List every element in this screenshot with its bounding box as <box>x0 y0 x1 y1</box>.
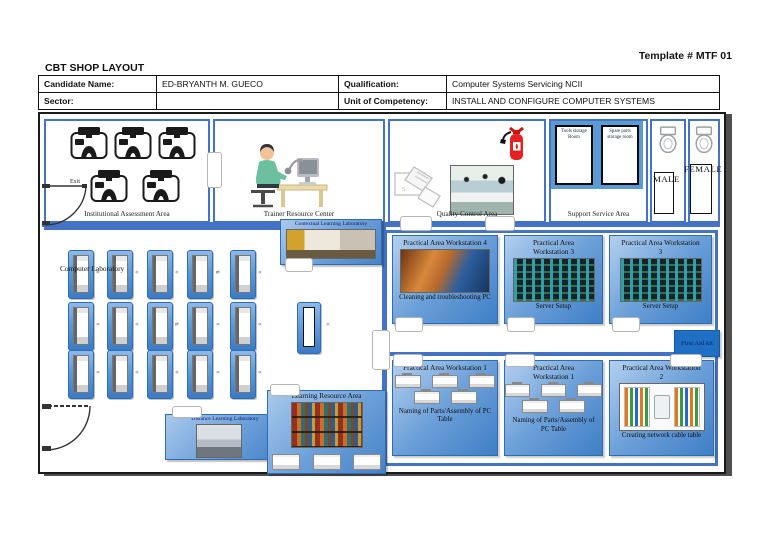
area-label: Support Service Area <box>551 210 646 218</box>
outlet-icon: « <box>258 368 262 376</box>
pc-part-icon <box>451 391 477 404</box>
door-opening <box>507 317 535 332</box>
cable-bundle <box>674 387 700 427</box>
workstation-caption: Naming of Parts/Assembly of PC Table <box>505 416 602 434</box>
pc-image <box>73 255 89 293</box>
trainer-at-computer-illustration <box>237 139 331 209</box>
pc-image <box>235 255 251 293</box>
workstation-title: Practical Area Workstation 4 <box>393 236 497 247</box>
workstation-caption: Creating network cable table <box>610 431 713 440</box>
learning-resource-area: Learning Resource Area <box>267 390 386 474</box>
pc-image <box>152 355 168 393</box>
workstation-desk-icon <box>114 126 152 160</box>
workstation-title: Practical Area Workstation 3 <box>505 236 602 256</box>
trainer-resource-center: Trainer Resource Center <box>213 119 385 223</box>
first-aid-kit: First Aid kit <box>674 330 720 357</box>
network-cable-photo <box>619 383 705 431</box>
outlet-icon: « <box>96 320 100 328</box>
male-label: MALE <box>653 174 680 184</box>
cabinet-door-tile <box>297 302 321 354</box>
female-label: FEMALE <box>684 164 722 174</box>
outlet-icon: « <box>175 368 179 376</box>
pc-image <box>73 307 89 345</box>
outlet-icon: « <box>96 368 100 376</box>
pc-part-icon <box>541 384 566 397</box>
workstation-caption: Server Setup <box>610 302 711 311</box>
computer-workstation-tile <box>107 350 133 399</box>
computer-workstation-tile <box>147 250 173 299</box>
toilet-icon <box>693 126 715 154</box>
outlet-icon: « <box>258 320 262 328</box>
table-row: Candidate Name: ED-BRYANTH M. GUECO Qual… <box>39 76 719 92</box>
pc-image <box>112 255 128 293</box>
pc-image <box>112 307 128 345</box>
sector-value <box>156 93 338 109</box>
pc-parts-row <box>505 400 602 413</box>
quality-control-photo <box>450 165 514 215</box>
pc-part-icon <box>577 384 602 397</box>
practical-area-workstation-3b: Practical Area Workstation 3 Server Setu… <box>609 235 712 324</box>
pc-part-icon <box>559 400 585 413</box>
practical-area-workstation-3: Practical Area Workstation 3 Server Setu… <box>504 235 603 324</box>
outlet-icon: « <box>216 368 220 376</box>
computer-workstation-tile <box>68 302 94 351</box>
computer-workstation-tile <box>147 350 173 399</box>
pc-parts-row <box>393 391 497 404</box>
outlet-icon: « <box>175 268 179 276</box>
pc-image <box>235 355 251 393</box>
candidate-info-table: Candidate Name: ED-BRYANTH M. GUECO Qual… <box>38 75 720 110</box>
entrance-door-icon <box>42 402 94 456</box>
door-opening <box>393 354 423 367</box>
reading-desk-icon <box>313 454 341 470</box>
qualification-value: Computer Systems Servicing NCII <box>446 76 719 92</box>
exit-label: Exit <box>70 179 80 185</box>
computer-workstation-tile <box>187 250 213 299</box>
door-opening <box>285 258 313 272</box>
computer-workstation-tile <box>68 250 94 299</box>
svg-text:5: 5 <box>402 187 405 193</box>
area-label: Trainer Resource Center <box>215 210 383 218</box>
workstation-desk-icon <box>90 169 128 203</box>
workstation-desk-icon <box>142 169 180 203</box>
equipment-sketch: 5 <box>394 165 450 211</box>
table-row: Sector: Unit of Competency: INSTALL AND … <box>39 92 719 109</box>
door-opening <box>400 216 432 231</box>
candidate-name-label: Candidate Name: <box>39 76 156 92</box>
toilet-icon <box>657 126 679 154</box>
spare-parts-storage: Spare parts storage room <box>601 125 639 185</box>
door-opening <box>485 216 515 231</box>
tools-storage-room: Tools storage Room <box>555 125 593 185</box>
bookshelf-photo <box>291 402 363 448</box>
workstation-title: Practical Area Workstation 3 <box>610 236 711 256</box>
pc-part-icon <box>505 384 530 397</box>
computer-workstation-tile <box>230 250 256 299</box>
workstation-desk-icon <box>70 126 108 160</box>
reading-desk-icon <box>353 454 381 470</box>
computer-workstation-tile <box>187 302 213 351</box>
computer-workstation-tile <box>107 250 133 299</box>
outlet-icon: « <box>326 320 330 328</box>
server-rack-photo <box>620 258 702 302</box>
door-opening <box>207 152 222 188</box>
workstation-caption: Cleaning and troubleshooting PC <box>393 293 497 302</box>
computer-laboratory-label: Computer Laboratory <box>60 264 124 273</box>
reading-desks <box>272 454 381 470</box>
practical-area-workstation-2: Practical Area Workstation 2 Creating ne… <box>609 360 714 456</box>
outlet-icon: ⇄ <box>216 268 220 276</box>
door-opening <box>270 384 300 396</box>
computer-workstation-tile <box>230 350 256 399</box>
server-rack-photo <box>513 258 595 302</box>
computer-workstation-tile <box>68 350 94 399</box>
unit-of-competency-value: INSTALL AND CONFIGURE COMPUTER SYSTEMS <box>446 93 719 109</box>
pc-part-icon <box>469 375 495 388</box>
unit-of-competency-label: Unit of Competency: <box>338 93 446 109</box>
wall-divider <box>386 352 716 356</box>
outlet-icon: « <box>135 368 139 376</box>
door-opening <box>395 317 423 332</box>
door-opening <box>372 330 390 370</box>
sector-label: Sector: <box>39 93 156 109</box>
pc-image <box>192 307 208 345</box>
classroom-photo <box>196 424 242 458</box>
cable-bundle <box>624 387 650 427</box>
outlet-icon: « <box>135 268 139 276</box>
area-label: Contextual Learning Laboratory <box>281 220 381 227</box>
pc-parts-row <box>505 384 602 397</box>
classroom-photo <box>286 229 376 259</box>
workstation-caption: Naming of Parts/Assembly of PC Table <box>393 407 497 425</box>
outlet-icon: « <box>216 320 220 328</box>
workstation-desk-icon <box>158 126 196 160</box>
shop-floor-plan: Exit Institutional Assessment Area <box>38 112 726 474</box>
first-aid-label: First Aid kit <box>681 340 713 347</box>
pc-part-icon <box>395 375 421 388</box>
exit-door-icon <box>42 183 92 227</box>
outlet-icon: « <box>258 268 262 276</box>
page-title: CBT SHOP LAYOUT <box>45 62 144 74</box>
area-label: Institutional Assessment Area <box>46 210 208 218</box>
computer-workstation-tile <box>147 302 173 351</box>
door-opening <box>172 406 202 418</box>
institutional-assessment-area: Exit Institutional Assessment Area <box>44 119 210 223</box>
pc-image <box>152 255 168 293</box>
door-opening <box>505 354 535 367</box>
door-panel <box>303 307 315 347</box>
pc-image <box>73 355 89 393</box>
storage-label: Spare parts storage room <box>603 127 637 141</box>
pc-image <box>152 307 168 345</box>
pc-image <box>192 255 208 293</box>
pc-image <box>112 355 128 393</box>
outlet-icon: ⇄ <box>175 320 179 328</box>
practical-area-workstation-4: Practical Area Workstation 4 Cleaning an… <box>392 235 498 324</box>
pc-repair-photo <box>400 249 490 293</box>
pc-image <box>192 355 208 393</box>
pc-part-icon <box>522 400 548 413</box>
reading-desk-icon <box>272 454 300 470</box>
template-number: Template # MTF 01 <box>639 50 732 62</box>
pc-part-icon <box>432 375 458 388</box>
candidate-name-value: ED-BRYANTH M. GUECO <box>156 76 338 92</box>
computer-workstation-tile <box>187 350 213 399</box>
computer-workstation-tile <box>230 302 256 351</box>
workstation-caption: Server Setup <box>505 302 602 311</box>
fire-extinguisher-icon <box>500 126 530 162</box>
pc-part-icon <box>414 391 440 404</box>
door-opening <box>612 317 640 332</box>
door-opening <box>670 354 702 367</box>
computer-workstation-tile <box>107 302 133 351</box>
outlet-icon: « <box>135 320 139 328</box>
crimping-tool-icon <box>654 395 670 419</box>
pc-parts-row <box>393 375 497 388</box>
qualification-label: Qualification: <box>338 76 446 92</box>
pc-image <box>235 307 251 345</box>
practical-area-workstation-1b: Practical Area Workstation 1 Naming of P… <box>504 360 603 456</box>
practical-area-workstation-1: Practical Area Workstation 1 Naming of P… <box>392 360 498 456</box>
quality-control-area: 5 Quality Control Area <box>388 119 546 223</box>
storage-label: Tools storage Room <box>557 127 591 141</box>
